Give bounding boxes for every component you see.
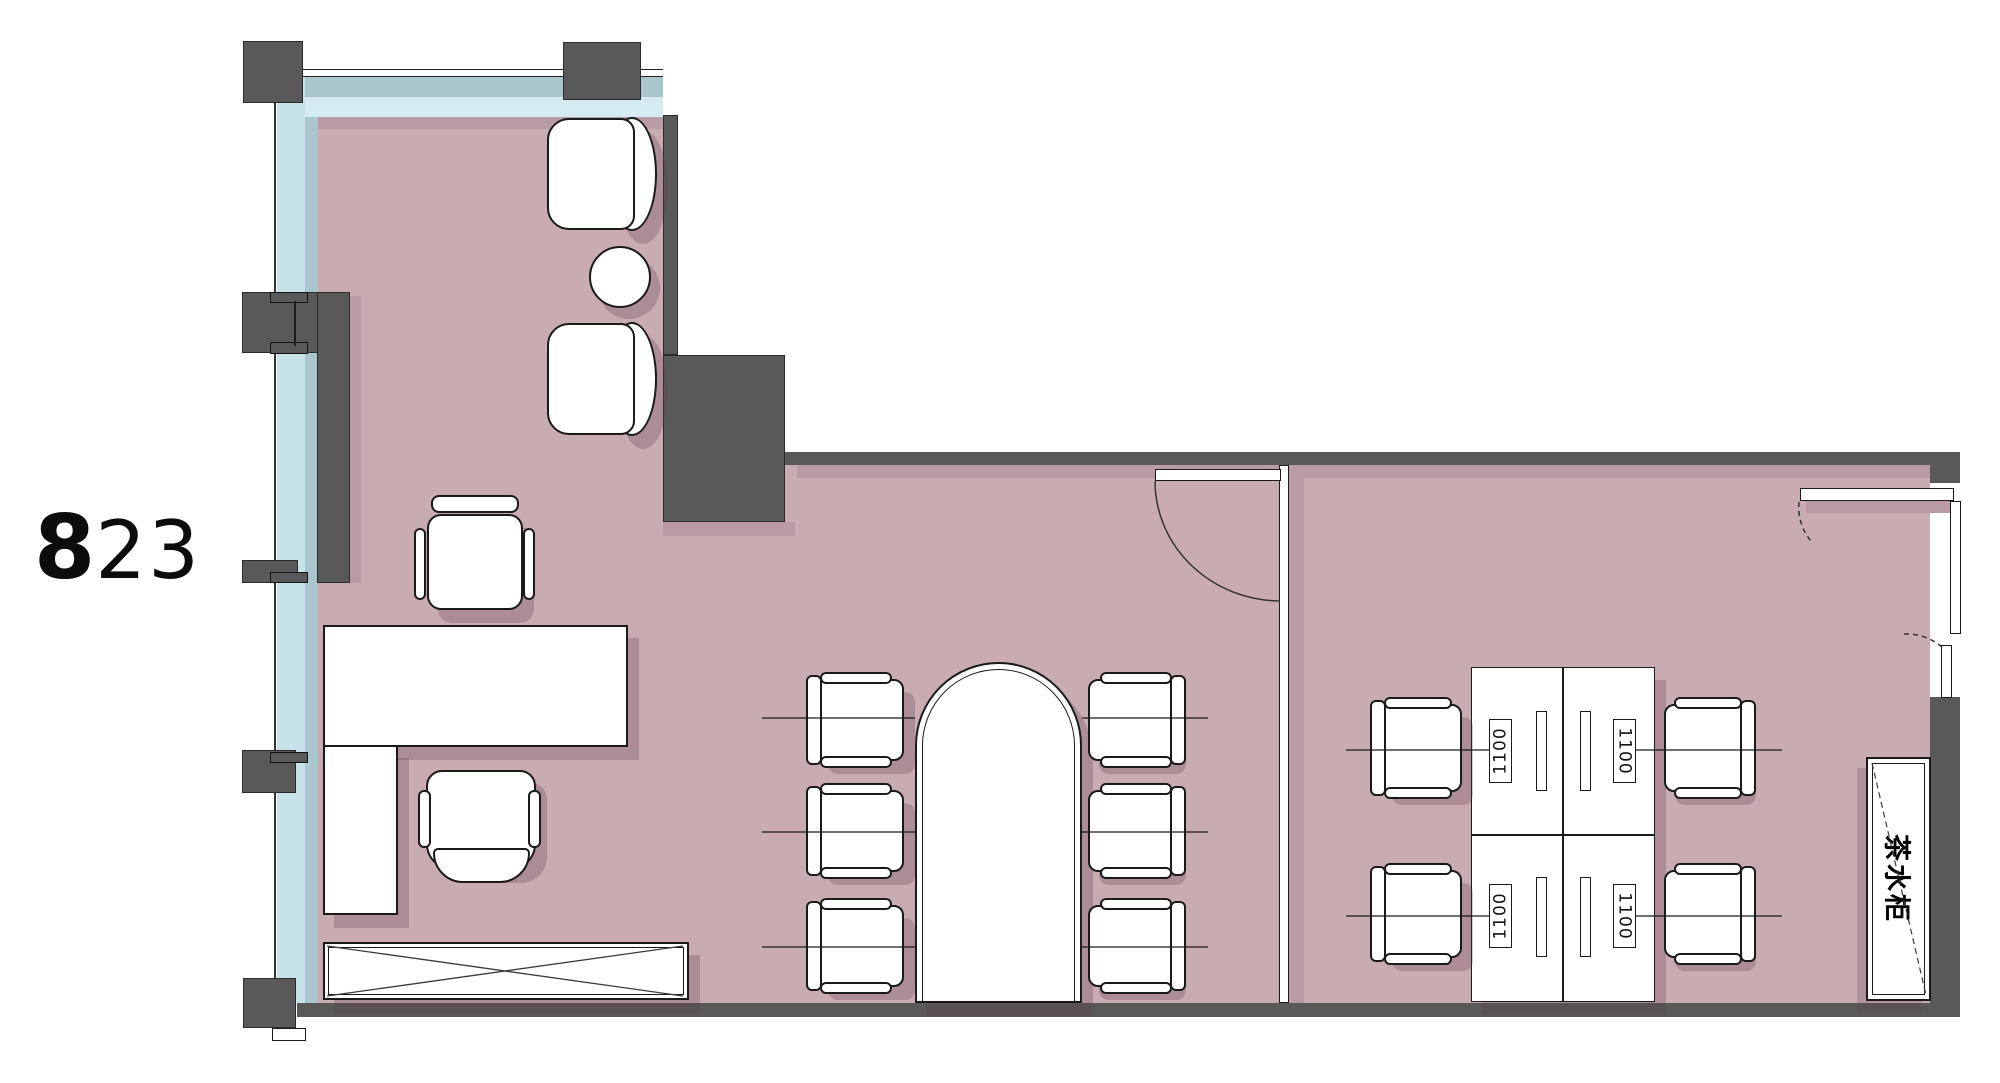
executive-desk	[323, 625, 628, 747]
mullion-notch	[272, 1028, 306, 1041]
window-glass-top-inner	[303, 97, 663, 117]
guest-chair	[410, 495, 540, 615]
wall-shadow	[1304, 465, 1930, 478]
executive-chair-arm	[528, 790, 541, 848]
mullion-wall-1	[317, 292, 350, 583]
wall-entry-east	[1950, 501, 1961, 634]
desk-divider-horizontal	[1472, 834, 1654, 836]
monitor	[1580, 711, 1591, 791]
wall-east-executive	[663, 115, 678, 355]
window-glass-left	[277, 77, 305, 1003]
wall-east-lower	[1930, 697, 1960, 1017]
tea-cabinet: 茶水柜	[1866, 757, 1931, 1001]
wall-shadow	[1806, 501, 1954, 513]
partition-wall-middle	[1279, 465, 1289, 1003]
credenza-inner	[328, 947, 684, 995]
lounge-chair-seat	[547, 323, 635, 435]
desk-dimension-text: 1100	[1615, 727, 1635, 774]
wall-shadow	[663, 522, 795, 536]
unit-number: 823	[34, 504, 201, 592]
guest-chair-arm	[414, 528, 426, 600]
guest-chair-arm	[523, 528, 535, 600]
floor-plan: 1100 1100 1100 1100 茶水柜 823	[0, 0, 2000, 1083]
meeting-table-inner	[922, 669, 1075, 1002]
desk-dimension-label: 1100	[1613, 884, 1636, 948]
unit-number-major: 8	[34, 504, 95, 592]
guest-chair-seat	[427, 514, 523, 610]
mullion-joint-line	[294, 301, 296, 346]
unit-number-minor: 23	[95, 511, 201, 591]
wall-south	[297, 1003, 1960, 1017]
guest-chair-headrest	[431, 495, 519, 513]
wall-shadow	[350, 296, 361, 583]
meeting-table	[915, 662, 1082, 1003]
wall-northeast-corner	[1930, 452, 1960, 483]
corner-column-southwest	[243, 978, 296, 1028]
round-side-table	[589, 246, 651, 308]
wall-north-main	[785, 452, 1960, 465]
column-north	[563, 42, 641, 100]
door-leaf-entry	[1941, 645, 1952, 698]
mullion-finger	[270, 292, 308, 303]
executive-chair-arm	[418, 790, 431, 848]
lounge-chair	[547, 320, 665, 440]
window-frame-left	[274, 77, 276, 1003]
wall-entry-north	[1800, 488, 1954, 501]
desk-dimension-label: 1100	[1613, 719, 1636, 783]
mullion-finger	[270, 572, 308, 583]
wall-shadow	[1289, 465, 1304, 1003]
desk-dimension-text: 1100	[1491, 892, 1511, 939]
lounge-chair-seat	[547, 118, 635, 230]
executive-chair-back	[433, 848, 530, 883]
tea-cabinet-label: 茶水柜	[1879, 834, 1918, 924]
wall-block-core	[663, 355, 785, 522]
mullion-finger	[270, 752, 308, 763]
monitor	[1536, 877, 1547, 957]
executive-desk-return	[323, 745, 398, 915]
credenza	[323, 942, 689, 1000]
corner-column-northwest	[243, 41, 303, 103]
executive-chair	[418, 768, 543, 888]
lounge-chair	[547, 115, 665, 235]
door-leaf-meeting	[1155, 469, 1281, 481]
workstation-desk-block	[1471, 667, 1655, 1002]
mullion-finger	[270, 342, 308, 354]
monitor	[1536, 711, 1547, 791]
desk-dimension-label: 1100	[1489, 884, 1512, 948]
desk-dimension-text: 1100	[1615, 892, 1635, 939]
desk-dimension-label: 1100	[1489, 719, 1512, 783]
monitor	[1580, 877, 1591, 957]
desk-dimension-text: 1100	[1491, 727, 1511, 774]
